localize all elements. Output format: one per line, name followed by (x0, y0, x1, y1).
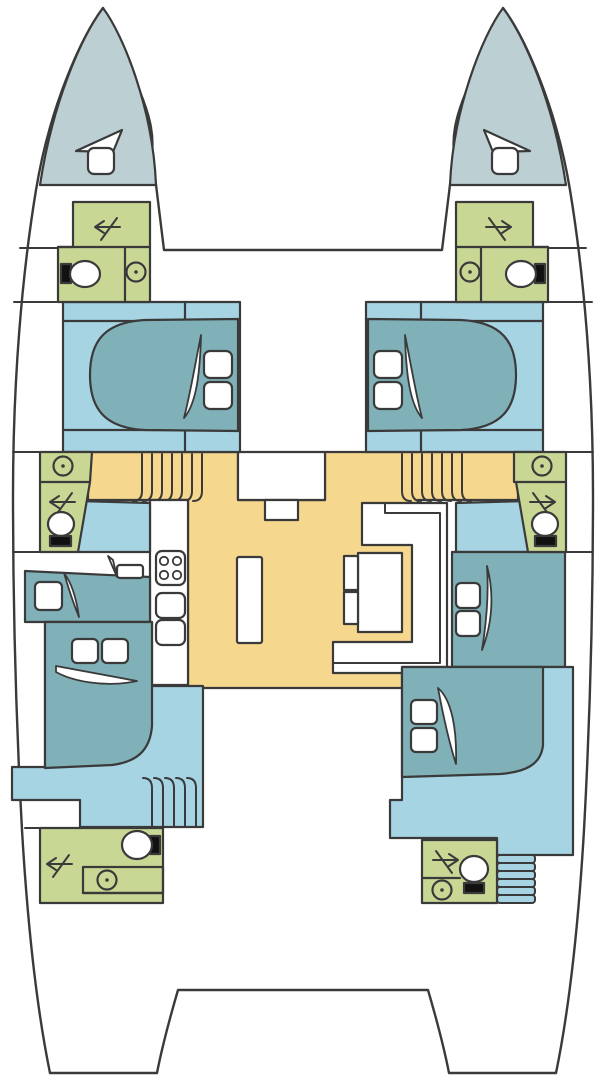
pillow-icon (204, 382, 232, 409)
floor-plan-canvas (0, 0, 606, 1080)
hatch-icon (88, 148, 114, 174)
pillow-icon (117, 565, 143, 578)
pillow-icon (102, 639, 128, 663)
port-corridor-wedge (78, 501, 150, 552)
pillow-icon (411, 700, 437, 724)
bow-lockers (40, 8, 566, 185)
sink-icon (54, 457, 73, 476)
forward-console-step (265, 500, 298, 520)
toilet-icon (532, 512, 558, 546)
forward-console (238, 452, 325, 500)
dinette-seat (344, 592, 358, 624)
pillow-icon (72, 639, 98, 663)
sink-icon (533, 457, 552, 476)
pillow-icon (456, 583, 480, 608)
toilet-icon (122, 831, 160, 859)
galley-island (237, 557, 262, 643)
hatch-icon (492, 148, 518, 174)
pillow-icon (35, 582, 62, 610)
starboard-mid-berth (452, 552, 565, 667)
pillow-icon (204, 351, 232, 378)
toilet-icon (48, 512, 74, 546)
pillow-icon (374, 351, 402, 378)
toilet-icon (506, 261, 545, 287)
stairs-aft-starboard (497, 855, 535, 903)
sink-icon (461, 263, 480, 282)
dinette-table (358, 553, 402, 632)
starboard-corridor-wedge (456, 501, 528, 552)
toilet-icon (61, 261, 100, 287)
sink-icon (98, 871, 117, 890)
toilet-icon (460, 856, 488, 893)
pillow-icon (456, 611, 480, 636)
sink-icon (433, 881, 452, 900)
sink-icon (127, 263, 146, 282)
galley-sink-icon (156, 620, 185, 645)
stove-icon (156, 551, 185, 585)
pillow-icon (411, 728, 437, 752)
galley-sink-icon (156, 593, 185, 618)
dinette-seat (344, 556, 358, 590)
pillow-icon (374, 382, 402, 409)
floor-plan (0, 0, 606, 1080)
